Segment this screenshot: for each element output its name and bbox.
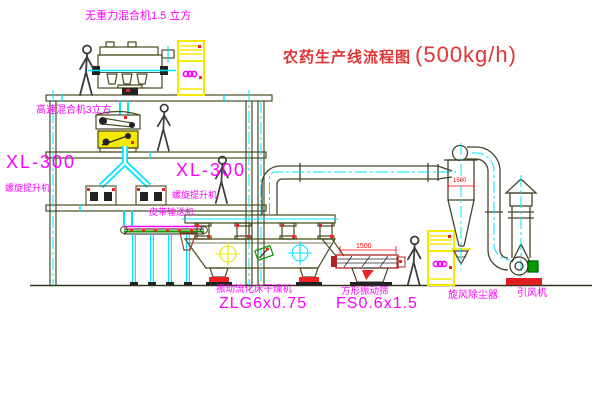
feeder-units <box>86 186 166 205</box>
gravity-free-mixer <box>88 42 176 95</box>
person-floor2 <box>158 104 170 150</box>
fan-label: 引风机 <box>517 289 547 299</box>
induced-draft-fan <box>506 257 542 285</box>
cyclone-separator <box>444 143 510 270</box>
feed-pipe <box>120 101 128 115</box>
cyclone-label: 旋风除尘器 <box>448 291 498 301</box>
high-speed-mixer <box>96 112 140 153</box>
belt-conveyor-label: 皮带输送机 <box>149 208 194 217</box>
dryer-name-label: 振动流化床干燥机 <box>216 285 292 295</box>
pesticide-line-flow-diagram: 无重力混合机1.5 立方 农药生产线流程图 (500kg/h) 高速混合机3立方… <box>0 0 600 403</box>
elevator-left-name: 螺旋提升机 <box>5 184 50 193</box>
screen-model-label: FS0.6x1.5 <box>336 296 418 312</box>
fluid-bed-dryer <box>180 215 338 286</box>
control-cabinet-ground <box>428 231 454 285</box>
elevator-mid-name: 螺旋提升机 <box>172 191 217 200</box>
belt-conveyor <box>121 227 208 286</box>
highspeed-mixer-label: 高速混合机3立方 <box>36 106 112 116</box>
gravity-mixer-label: 无重力混合机1.5 立方 <box>85 11 191 22</box>
vibrating-screen <box>331 246 405 286</box>
building-structure <box>46 90 272 285</box>
screen-dimension: 1500 <box>356 243 372 250</box>
title-capacity: (500kg/h) <box>415 44 517 66</box>
exhaust-duct <box>262 163 456 215</box>
elevator-left-model: XL-300 <box>6 153 76 171</box>
drop-pipe <box>124 211 132 226</box>
title-text: 农药生产线流程图 <box>283 50 411 65</box>
person-ground <box>408 236 421 284</box>
dryer-model-label: ZLG6x0.75 <box>219 296 307 312</box>
diagram-title: 农药生产线流程图 (500kg/h) <box>283 44 517 66</box>
cyclone-dimension: 1500 <box>453 178 466 184</box>
control-cabinet-upper <box>178 41 204 95</box>
elevator-mid-model: XL-300 <box>176 161 246 179</box>
